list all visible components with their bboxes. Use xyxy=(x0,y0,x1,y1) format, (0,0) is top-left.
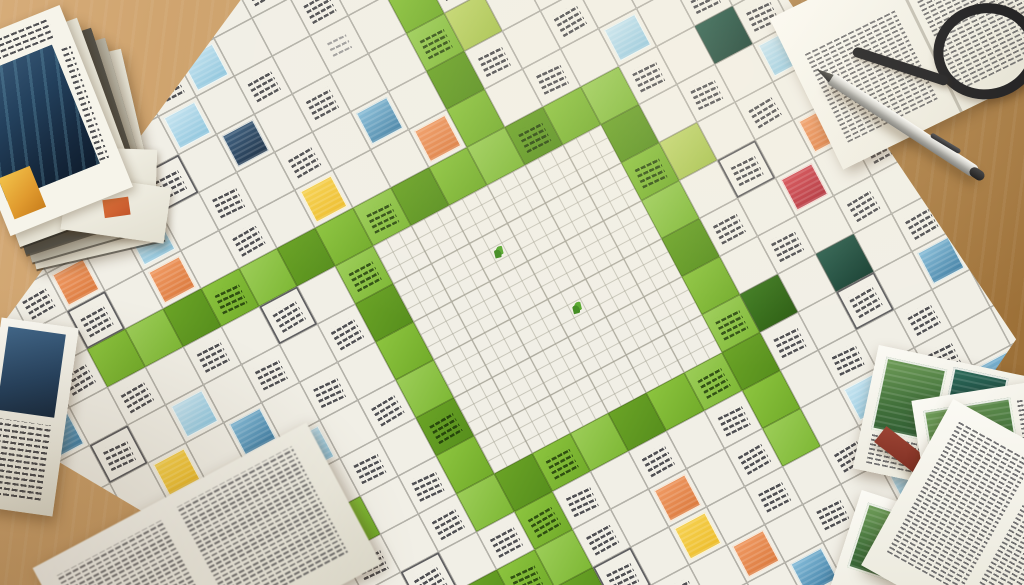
scene xyxy=(0,0,1024,585)
booklet-text-lines xyxy=(0,418,53,501)
eyeglasses-lens xyxy=(927,0,1024,106)
orange-tab xyxy=(102,197,130,218)
fanned-papers xyxy=(836,352,1024,585)
booklet-photo xyxy=(0,327,66,418)
